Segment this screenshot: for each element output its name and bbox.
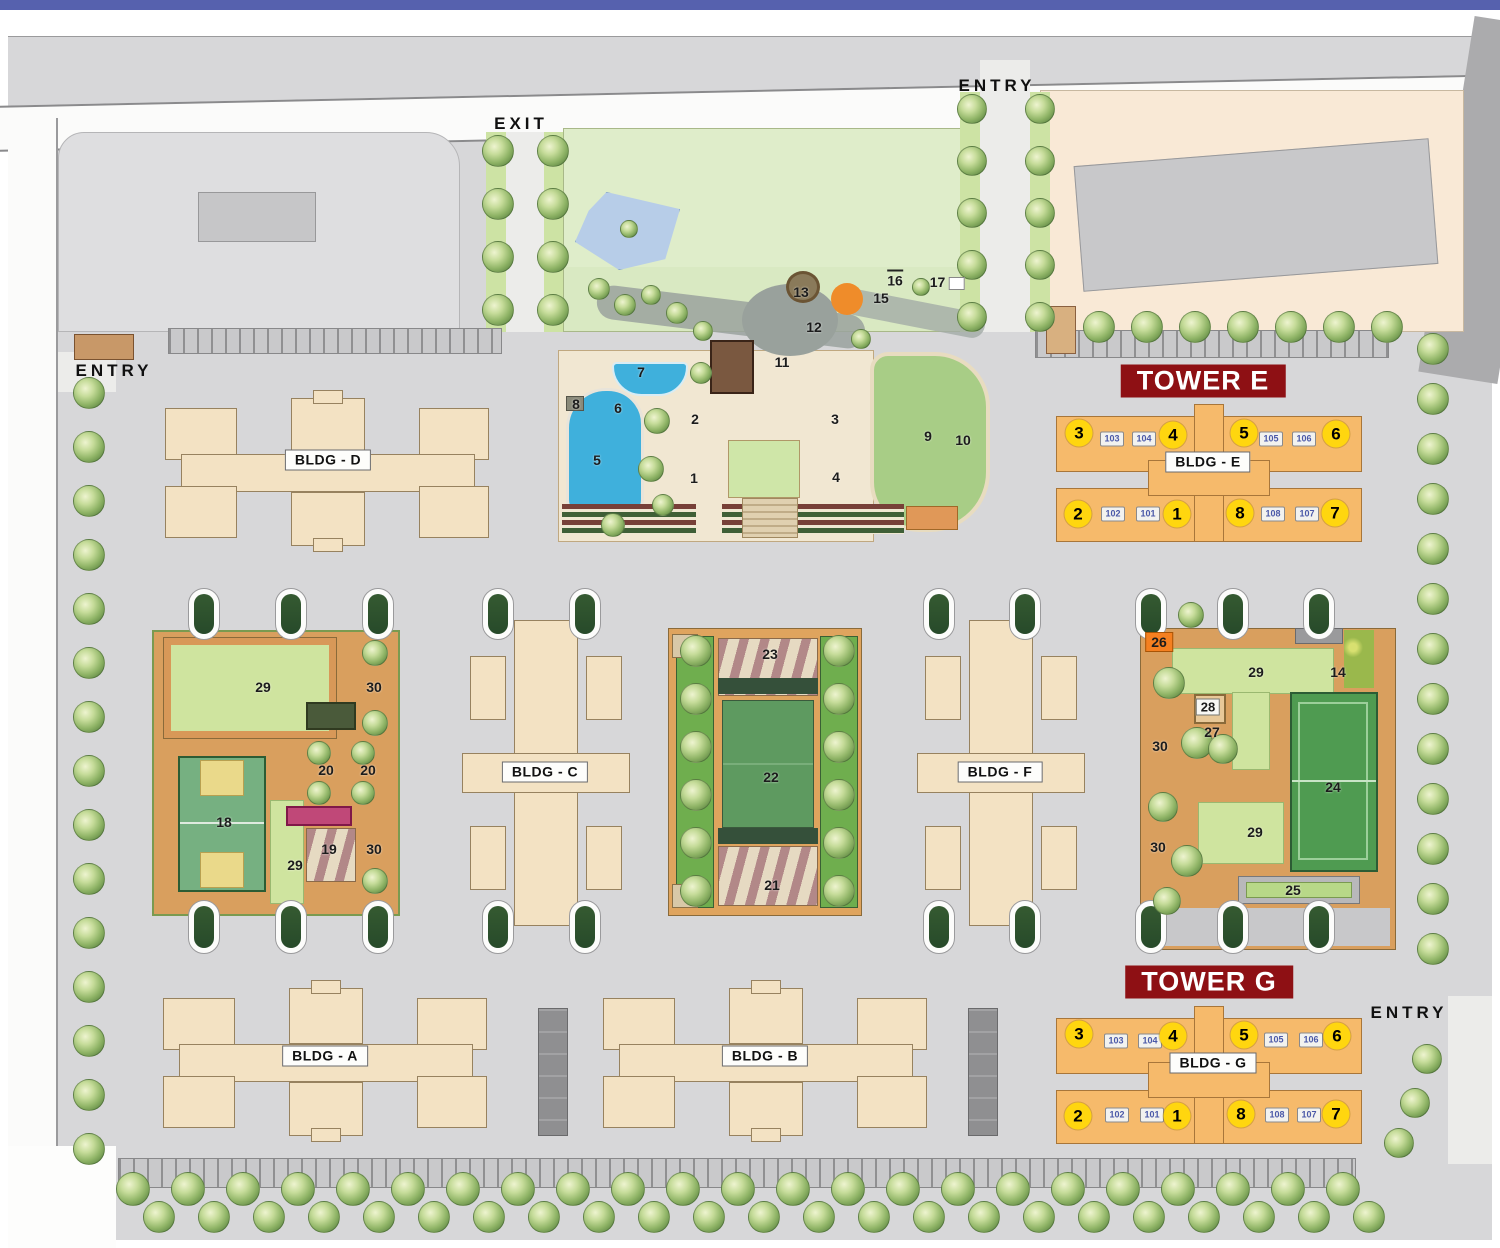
tree bbox=[1025, 198, 1055, 228]
amenity-marker-24: 24 bbox=[1325, 779, 1341, 795]
tree bbox=[957, 146, 987, 176]
amenity-marker-14: 14 bbox=[1330, 664, 1346, 680]
clubhouse-building bbox=[710, 340, 754, 394]
tree bbox=[957, 302, 987, 332]
amenity-marker-9: 9 bbox=[924, 428, 932, 444]
neighbour-building-left bbox=[198, 192, 316, 242]
building-a-part bbox=[163, 1076, 235, 1128]
paving-21 bbox=[718, 846, 818, 906]
tree bbox=[588, 278, 610, 300]
unit-circle-7: 7 bbox=[1322, 500, 1349, 527]
unit-circle-7: 7 bbox=[1323, 1101, 1350, 1128]
amenity-marker-10: 10 bbox=[955, 432, 971, 448]
amenity-marker-6: 6 bbox=[614, 400, 622, 416]
hedge-pill bbox=[362, 900, 394, 954]
right-block-hedge bbox=[1344, 630, 1374, 688]
tree bbox=[638, 1201, 670, 1233]
tree bbox=[1025, 302, 1055, 332]
amenity-marker-25: 25 bbox=[1285, 882, 1301, 898]
tree bbox=[362, 640, 388, 666]
tree bbox=[482, 241, 514, 273]
tree bbox=[1384, 1128, 1414, 1158]
hedge bbox=[194, 906, 214, 948]
tree bbox=[307, 781, 331, 805]
hedge bbox=[1309, 906, 1329, 948]
amenity-marker-16: 16 bbox=[887, 270, 903, 289]
tree bbox=[281, 1172, 315, 1206]
unit-badge-105: 105 bbox=[1259, 432, 1283, 447]
amenity-marker-30: 30 bbox=[366, 841, 382, 857]
tree bbox=[614, 294, 636, 316]
amenity-marker-29: 29 bbox=[1248, 664, 1264, 680]
bball-key-bottom bbox=[200, 852, 244, 888]
hedge-pill bbox=[1009, 900, 1041, 954]
tree bbox=[690, 362, 712, 384]
amenity-marker-21: 21 bbox=[764, 877, 780, 893]
tree bbox=[537, 135, 569, 167]
unit-badge-108: 108 bbox=[1261, 507, 1285, 522]
tree bbox=[537, 188, 569, 220]
tree bbox=[693, 321, 713, 341]
left-road bbox=[8, 118, 58, 1150]
tree bbox=[823, 779, 855, 811]
tree bbox=[336, 1172, 370, 1206]
building-d-part bbox=[313, 538, 343, 552]
tree bbox=[556, 1172, 590, 1206]
parking-bay-a bbox=[538, 1008, 568, 1136]
amenity-marker-30: 30 bbox=[366, 679, 382, 695]
unit-badge-101: 101 bbox=[1136, 507, 1160, 522]
amenity-marker-12: 12 bbox=[806, 319, 822, 335]
tree bbox=[1298, 1201, 1330, 1233]
middle-tree-strip-right bbox=[820, 636, 858, 908]
building-a-part bbox=[417, 998, 487, 1050]
tree bbox=[823, 827, 855, 859]
bball-key-top bbox=[200, 760, 244, 796]
middle-tree-strip-left bbox=[676, 636, 714, 908]
building-b-part bbox=[729, 988, 803, 1044]
amenity-marker-20: 20 bbox=[318, 762, 334, 778]
amenity-marker-13: 13 bbox=[793, 284, 809, 300]
tree bbox=[253, 1201, 285, 1233]
tree bbox=[1417, 383, 1449, 415]
tree bbox=[1078, 1201, 1110, 1233]
hedge-band-bottom bbox=[718, 828, 818, 844]
tree bbox=[73, 539, 105, 571]
unit-badge-105: 105 bbox=[1264, 1033, 1288, 1048]
tree bbox=[1161, 1172, 1195, 1206]
building-d-part bbox=[419, 408, 489, 460]
hedge-pill bbox=[1009, 588, 1041, 640]
hedge-pill bbox=[482, 900, 514, 954]
tree bbox=[73, 1079, 105, 1111]
plaza-steps bbox=[742, 498, 798, 538]
tree bbox=[611, 1172, 645, 1206]
tree bbox=[1178, 602, 1204, 628]
tree bbox=[116, 1172, 150, 1206]
hedge bbox=[929, 906, 949, 948]
tree bbox=[1133, 1201, 1165, 1233]
tree bbox=[1179, 311, 1211, 343]
tree bbox=[1171, 845, 1203, 877]
building-c-part bbox=[586, 656, 622, 720]
amenity-marker-22: 22 bbox=[763, 769, 779, 785]
hedge bbox=[1141, 594, 1161, 634]
tree bbox=[1025, 250, 1055, 280]
left-block-stage bbox=[286, 806, 352, 826]
amenity-marker-5: 5 bbox=[593, 452, 601, 468]
hedge-band-top bbox=[718, 678, 818, 694]
hedge-pill bbox=[188, 588, 220, 640]
tree bbox=[1153, 667, 1185, 699]
amenity-marker-19: 19 bbox=[321, 841, 337, 857]
tree bbox=[1153, 887, 1181, 915]
unit-circle-8: 8 bbox=[1228, 1101, 1255, 1128]
tree bbox=[537, 294, 569, 326]
unit-circle-2: 2 bbox=[1065, 1103, 1092, 1130]
entry-label-2: ENTRY bbox=[76, 361, 153, 381]
building-d-part bbox=[165, 408, 237, 460]
hedge bbox=[368, 906, 388, 948]
unit-badge-102: 102 bbox=[1105, 1108, 1129, 1123]
building-b-part bbox=[751, 1128, 781, 1142]
amenity-marker-20: 20 bbox=[360, 762, 376, 778]
tree bbox=[73, 863, 105, 895]
tree bbox=[362, 710, 388, 736]
building-f-part bbox=[969, 620, 1033, 760]
amenity-marker-30: 30 bbox=[1150, 839, 1166, 855]
tree bbox=[693, 1201, 725, 1233]
tree bbox=[1243, 1201, 1275, 1233]
tree bbox=[482, 294, 514, 326]
tree bbox=[1326, 1172, 1360, 1206]
amenity-marker-27: 27 bbox=[1204, 724, 1220, 740]
unit-badge-103: 103 bbox=[1100, 432, 1124, 447]
tree bbox=[666, 1172, 700, 1206]
amenity-marker-29: 29 bbox=[255, 679, 271, 695]
exit-label-1: EXIT bbox=[494, 114, 548, 134]
site-plan: ENTRYEXITENTRYENTRYTOWER ETOWER GBLDG - … bbox=[0, 0, 1500, 1248]
tree bbox=[73, 593, 105, 625]
hedge bbox=[368, 594, 388, 634]
tree bbox=[638, 456, 664, 482]
hedge-pill bbox=[569, 900, 601, 954]
hedge-pill bbox=[482, 588, 514, 640]
tree bbox=[620, 220, 638, 238]
amenity-marker-3: 3 bbox=[831, 411, 839, 427]
tree bbox=[851, 329, 871, 349]
tree bbox=[583, 1201, 615, 1233]
amenity-marker-4: 4 bbox=[832, 469, 840, 485]
tree bbox=[73, 1025, 105, 1057]
tree bbox=[652, 494, 674, 516]
unit-circle-3: 3 bbox=[1066, 420, 1093, 447]
building-a-part bbox=[163, 998, 235, 1050]
tree bbox=[1323, 311, 1355, 343]
pergola-left bbox=[562, 504, 696, 534]
tree bbox=[1371, 311, 1403, 343]
tree bbox=[537, 241, 569, 273]
tree bbox=[680, 827, 712, 859]
tree bbox=[1188, 1201, 1220, 1233]
tree bbox=[886, 1172, 920, 1206]
tree bbox=[601, 513, 625, 537]
building-b-part bbox=[857, 998, 927, 1050]
tree bbox=[501, 1172, 535, 1206]
tree bbox=[482, 188, 514, 220]
unit-badge-104: 104 bbox=[1132, 432, 1156, 447]
hedge bbox=[1223, 594, 1243, 634]
building-d-part bbox=[419, 486, 489, 538]
tree bbox=[363, 1201, 395, 1233]
tree bbox=[143, 1201, 175, 1233]
tree bbox=[482, 135, 514, 167]
left-block-structure bbox=[306, 702, 356, 730]
tree bbox=[968, 1201, 1000, 1233]
tree bbox=[73, 485, 105, 517]
tree bbox=[912, 278, 930, 296]
tree bbox=[226, 1172, 260, 1206]
tree bbox=[1148, 792, 1178, 822]
tower-banner-g: TOWER G bbox=[1125, 966, 1293, 999]
tree bbox=[721, 1172, 755, 1206]
amenity-marker-1: 1 bbox=[690, 470, 698, 486]
hedge-pill bbox=[923, 900, 955, 954]
amenity-marker-15: 15 bbox=[873, 290, 889, 306]
hedge-pill bbox=[362, 588, 394, 640]
tree bbox=[680, 875, 712, 907]
hedge-pill bbox=[923, 588, 955, 640]
entry-label-0: ENTRY bbox=[959, 76, 1036, 96]
tree bbox=[957, 198, 987, 228]
tree bbox=[1023, 1201, 1055, 1233]
tree bbox=[73, 971, 105, 1003]
building-label-a: BLDG - A bbox=[282, 1046, 368, 1067]
building-a-part bbox=[311, 980, 341, 994]
tree bbox=[776, 1172, 810, 1206]
tree bbox=[1417, 483, 1449, 515]
tree bbox=[73, 809, 105, 841]
unit-circle-1: 1 bbox=[1164, 501, 1191, 528]
tree bbox=[831, 1172, 865, 1206]
tree bbox=[1051, 1172, 1085, 1206]
hedge-pill bbox=[275, 588, 307, 640]
entry-road bbox=[980, 60, 1030, 332]
building-f-part bbox=[925, 826, 961, 890]
tree bbox=[913, 1201, 945, 1233]
tree bbox=[823, 635, 855, 667]
tree bbox=[391, 1172, 425, 1206]
tree bbox=[1417, 533, 1449, 565]
building-d-part bbox=[313, 390, 343, 404]
unit-badge-101: 101 bbox=[1140, 1108, 1164, 1123]
hedge bbox=[1309, 594, 1329, 634]
tree bbox=[996, 1172, 1030, 1206]
unit-circle-4: 4 bbox=[1160, 422, 1187, 449]
tree bbox=[73, 917, 105, 949]
tree bbox=[198, 1201, 230, 1233]
tree bbox=[1400, 1088, 1430, 1118]
central-lawn bbox=[728, 440, 800, 498]
hedge-pill bbox=[1217, 900, 1249, 954]
hedge bbox=[488, 906, 508, 948]
right-block-walk bbox=[1146, 908, 1390, 946]
hedge-pill bbox=[1303, 900, 1335, 954]
tree bbox=[473, 1201, 505, 1233]
tree bbox=[644, 408, 670, 434]
tree bbox=[308, 1201, 340, 1233]
tower-banner-e: TOWER E bbox=[1121, 365, 1286, 398]
tree bbox=[823, 731, 855, 763]
hedge bbox=[1223, 906, 1243, 948]
tree bbox=[957, 94, 987, 124]
unit-circle-5: 5 bbox=[1231, 1022, 1258, 1049]
tree bbox=[73, 647, 105, 679]
tree bbox=[171, 1172, 205, 1206]
hedge bbox=[488, 594, 508, 634]
amenity-marker-18: 18 bbox=[216, 814, 232, 830]
tree bbox=[666, 302, 688, 324]
amenity-marker-28: 28 bbox=[1196, 699, 1220, 716]
parking-strip-top-left bbox=[168, 328, 502, 354]
building-b-part bbox=[751, 980, 781, 994]
building-f-part bbox=[1041, 656, 1077, 720]
amenity-marker-30: 30 bbox=[1152, 738, 1168, 754]
building-c-part bbox=[514, 620, 578, 760]
hedge bbox=[1015, 594, 1035, 634]
unit-circle-8: 8 bbox=[1227, 500, 1254, 527]
tree bbox=[362, 868, 388, 894]
gate-left bbox=[74, 334, 134, 360]
tree bbox=[1131, 311, 1163, 343]
top-accent-bar bbox=[0, 0, 1500, 10]
building-a-part bbox=[289, 988, 363, 1044]
unit-badge-108: 108 bbox=[1265, 1108, 1289, 1123]
tree bbox=[1417, 833, 1449, 865]
building-label-d: BLDG - D bbox=[285, 450, 371, 471]
tree bbox=[1412, 1044, 1442, 1074]
unit-circle-3: 3 bbox=[1066, 1021, 1093, 1048]
unit-circle-6: 6 bbox=[1323, 421, 1350, 448]
building-f-part bbox=[1041, 826, 1077, 890]
hedge-pill bbox=[188, 900, 220, 954]
lawn-29-right-bottom bbox=[1198, 802, 1284, 864]
building-c-part bbox=[586, 826, 622, 890]
unit-circle-6: 6 bbox=[1324, 1023, 1351, 1050]
tree bbox=[1417, 633, 1449, 665]
signage-icon bbox=[948, 277, 964, 290]
oval-deck bbox=[906, 506, 958, 530]
amenity-marker-2: 2 bbox=[691, 411, 699, 427]
tree bbox=[1417, 783, 1449, 815]
hedge-pill bbox=[569, 588, 601, 640]
tree bbox=[641, 285, 661, 305]
building-label-g: BLDG - G bbox=[1170, 1053, 1257, 1074]
tree bbox=[1417, 433, 1449, 465]
unit-circle-4: 4 bbox=[1160, 1023, 1187, 1050]
unit-circle-1: 1 bbox=[1164, 1103, 1191, 1130]
entry-road-right bbox=[1448, 996, 1492, 1164]
building-c-part bbox=[470, 826, 506, 890]
tree bbox=[680, 779, 712, 811]
bottom-left-margin bbox=[8, 1146, 116, 1248]
tree bbox=[680, 731, 712, 763]
tree bbox=[941, 1172, 975, 1206]
amenity-marker-26: 26 bbox=[1145, 632, 1173, 652]
amenity-marker-17: 17 bbox=[930, 274, 965, 290]
hedge-pill bbox=[1217, 588, 1249, 640]
tree bbox=[1025, 146, 1055, 176]
tree bbox=[748, 1201, 780, 1233]
unit-circle-2: 2 bbox=[1065, 501, 1092, 528]
tree bbox=[1417, 883, 1449, 915]
building-a-part bbox=[311, 1128, 341, 1142]
tree bbox=[1227, 311, 1259, 343]
tree bbox=[1417, 733, 1449, 765]
amenity-marker-7: 7 bbox=[637, 364, 645, 380]
hedge bbox=[575, 594, 595, 634]
tree bbox=[823, 875, 855, 907]
tree bbox=[73, 431, 105, 463]
tree bbox=[1271, 1172, 1305, 1206]
tree bbox=[351, 781, 375, 805]
tree bbox=[73, 755, 105, 787]
building-b-part bbox=[603, 1076, 675, 1128]
hedge bbox=[929, 594, 949, 634]
tree bbox=[73, 701, 105, 733]
hedge bbox=[194, 594, 214, 634]
tree bbox=[1275, 311, 1307, 343]
unit-badge-104: 104 bbox=[1138, 1034, 1162, 1049]
building-c-part bbox=[514, 786, 578, 926]
hedge bbox=[1015, 906, 1035, 948]
tree bbox=[1417, 933, 1449, 965]
hedge bbox=[281, 594, 301, 634]
building-label-e: BLDG - E bbox=[1165, 452, 1250, 473]
tree bbox=[1417, 333, 1449, 365]
unit-badge-102: 102 bbox=[1101, 507, 1125, 522]
hedge bbox=[281, 906, 301, 948]
amenity-marker-29: 29 bbox=[287, 857, 303, 873]
unit-badge-103: 103 bbox=[1104, 1034, 1128, 1049]
tree bbox=[528, 1201, 560, 1233]
unit-badge-107: 107 bbox=[1297, 1108, 1321, 1123]
amenity-marker-29: 29 bbox=[1247, 824, 1263, 840]
tree bbox=[1216, 1172, 1250, 1206]
building-d-part bbox=[165, 486, 237, 538]
tree bbox=[418, 1201, 450, 1233]
building-label-b: BLDG - B bbox=[722, 1046, 808, 1067]
tree bbox=[680, 635, 712, 667]
tree bbox=[73, 1133, 105, 1165]
amenity-marker-8: 8 bbox=[572, 396, 580, 412]
hedge-pill bbox=[275, 900, 307, 954]
building-b-part bbox=[857, 1076, 927, 1128]
amenity-marker-23: 23 bbox=[762, 646, 778, 662]
unit-badge-106: 106 bbox=[1299, 1033, 1323, 1048]
unit-badge-107: 107 bbox=[1295, 507, 1319, 522]
tree bbox=[823, 683, 855, 715]
tree bbox=[73, 377, 105, 409]
court-22-line bbox=[723, 763, 813, 765]
building-b-part bbox=[603, 998, 675, 1050]
tree bbox=[803, 1201, 835, 1233]
tree bbox=[858, 1201, 890, 1233]
amenity-marker-11: 11 bbox=[775, 354, 790, 370]
park-orange-feature bbox=[831, 283, 863, 315]
building-a-part bbox=[417, 1076, 487, 1128]
tree bbox=[1106, 1172, 1140, 1206]
